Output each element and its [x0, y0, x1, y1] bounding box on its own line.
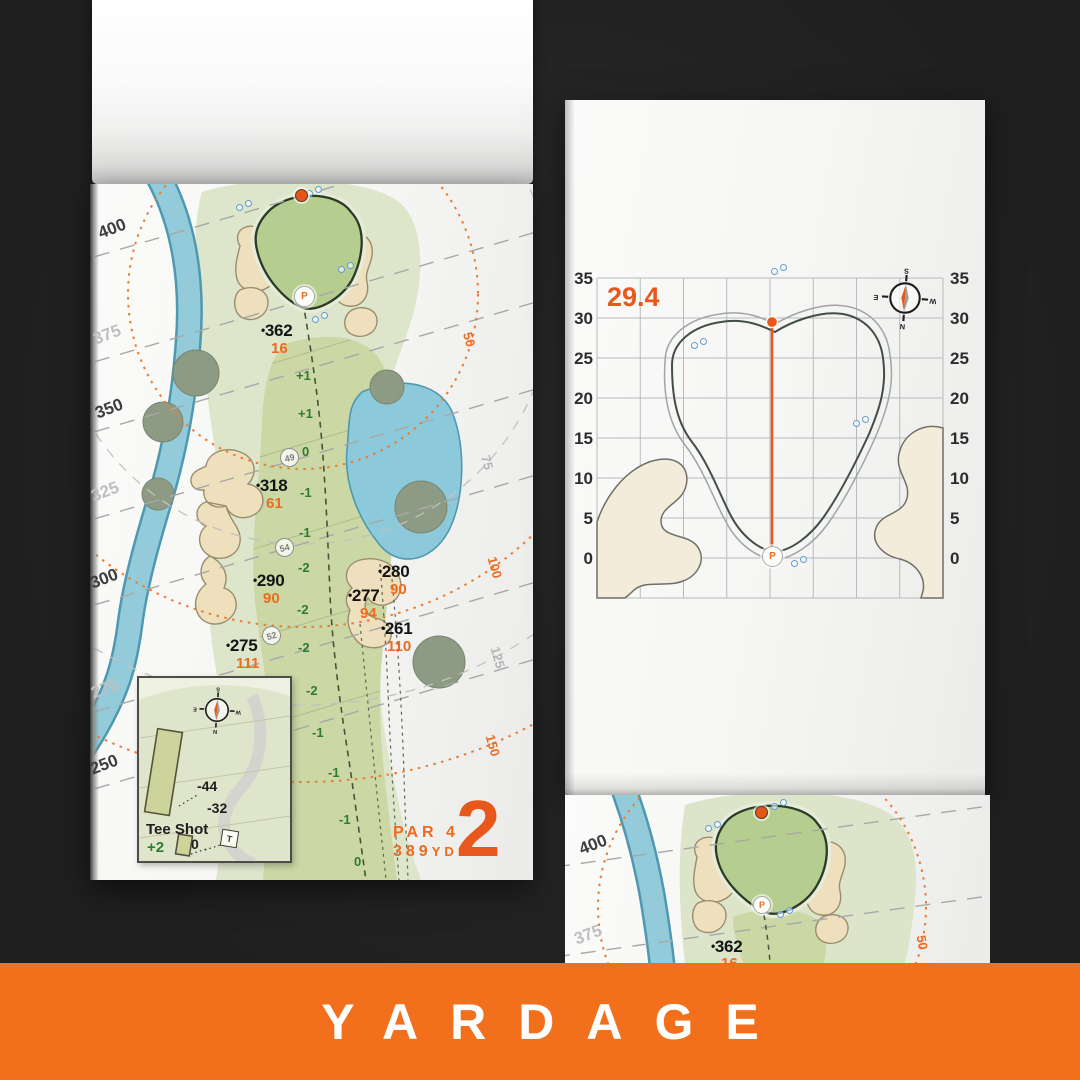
depth-dot — [767, 317, 778, 328]
yardage-point: •280 — [378, 562, 409, 582]
sprinkler-icon — [312, 312, 332, 326]
axis-tick: 10 — [950, 469, 978, 489]
axis-tick: 20 — [950, 389, 978, 409]
axis-tick: 5 — [565, 509, 593, 529]
green-chart-art — [565, 100, 985, 795]
slope-value: -2 — [306, 683, 318, 698]
tee-zero-distance: 0 — [191, 836, 199, 852]
slope-value: -1 — [339, 812, 351, 827]
sprinkler-icon — [691, 338, 711, 352]
aim-dot — [295, 189, 308, 202]
carry-value: 16 — [721, 955, 738, 963]
yardage-point: •277 — [348, 586, 379, 606]
slope-value: 0 — [302, 444, 309, 459]
yardage-banner: YARDAGE — [0, 963, 1080, 1080]
yardage-point: •318 — [256, 476, 287, 496]
tee-back-distance: -44 — [197, 778, 217, 794]
carry-value: 94 — [360, 605, 377, 622]
slope-value: -1 — [299, 525, 311, 540]
axis-tick: 15 — [565, 429, 593, 449]
carry-value: 61 — [266, 495, 283, 512]
axis-tick: 0 — [565, 549, 593, 569]
slope-value: -2 — [298, 640, 310, 655]
tee-score: +2 — [147, 839, 164, 856]
sprinkler-icon — [771, 264, 791, 278]
carry-value: 90 — [263, 590, 280, 607]
river-fill — [623, 795, 662, 963]
sprinkler-icon — [306, 186, 326, 200]
sprinkler-icon — [791, 556, 811, 570]
carry-value: 16 — [271, 340, 288, 357]
axis-tick: 15 — [950, 429, 978, 449]
carry-value: 111 — [236, 655, 259, 672]
axis-tick: 0 — [950, 549, 978, 569]
axis-tick: 30 — [565, 309, 593, 329]
slope-value: -2 — [298, 560, 310, 575]
sprinkler-icon — [236, 200, 256, 214]
yards-label: 389YD — [393, 843, 458, 861]
slope-value: -1 — [312, 725, 324, 740]
banner-title: YARDAGE — [289, 993, 790, 1051]
slope-value: -2 — [297, 602, 309, 617]
carry-value: 90 — [390, 581, 407, 598]
compass-icon: NE SW — [883, 276, 928, 321]
pin-marker: P — [294, 286, 315, 307]
slope-value: 0 — [354, 854, 361, 869]
tee-front-distance: -32 — [207, 800, 227, 816]
yardage-point: •261 — [381, 619, 412, 639]
par-label: PAR 4 — [393, 824, 459, 842]
sprinkler-icon — [338, 262, 358, 276]
green-depth-value: 29.4 — [607, 282, 660, 313]
next-hole-page: 400 375 •362 16 50 P — [565, 795, 990, 963]
sprinkler-icon — [777, 907, 797, 921]
arc-label: 50 — [914, 934, 931, 951]
slope-value: +1 — [296, 368, 311, 383]
axis-tick: 30 — [950, 309, 978, 329]
slope-value: +1 — [298, 406, 313, 421]
green-detail-page: 35 30 25 20 15 10 5 0 35 30 25 20 15 10 … — [565, 100, 985, 795]
axis-tick: 25 — [950, 349, 978, 369]
yardage-point: •275 — [226, 636, 257, 656]
axis-tick: 35 — [950, 269, 978, 289]
slope-value: -1 — [300, 485, 312, 500]
axis-tick: 10 — [565, 469, 593, 489]
sprinkler-icon — [705, 821, 725, 835]
pin-marker: P — [762, 546, 783, 567]
aim-dot — [755, 806, 768, 819]
axis-tick: 20 — [565, 389, 593, 409]
slope-value: -1 — [328, 765, 340, 780]
axis-tick: 25 — [565, 349, 593, 369]
axis-tick: 5 — [950, 509, 978, 529]
pin-marker: P — [753, 896, 771, 914]
hole-map-page: 400 375 350 325 300 275 250 50 75 100 12… — [90, 184, 533, 880]
yardage-point: •362 — [261, 321, 292, 341]
axis-tick: 35 — [565, 269, 593, 289]
yardage-point: •290 — [253, 571, 284, 591]
carry-value: 110 — [387, 638, 411, 655]
left-flipped-blank-page — [92, 0, 533, 184]
product-image: 400 375 350 325 300 275 250 50 75 100 12… — [0, 0, 1080, 1080]
hole-number: 2 — [456, 796, 501, 862]
yardage-point: •362 — [711, 937, 742, 957]
compass-icon: NE SW — [200, 693, 234, 727]
tee-shot-inset: NE SW -44 -32 Tee Shot +2 0 T — [137, 676, 292, 863]
sprinkler-icon — [771, 799, 791, 813]
sprinkler-icon — [853, 416, 873, 430]
tee-marker-icon: T — [220, 829, 239, 848]
